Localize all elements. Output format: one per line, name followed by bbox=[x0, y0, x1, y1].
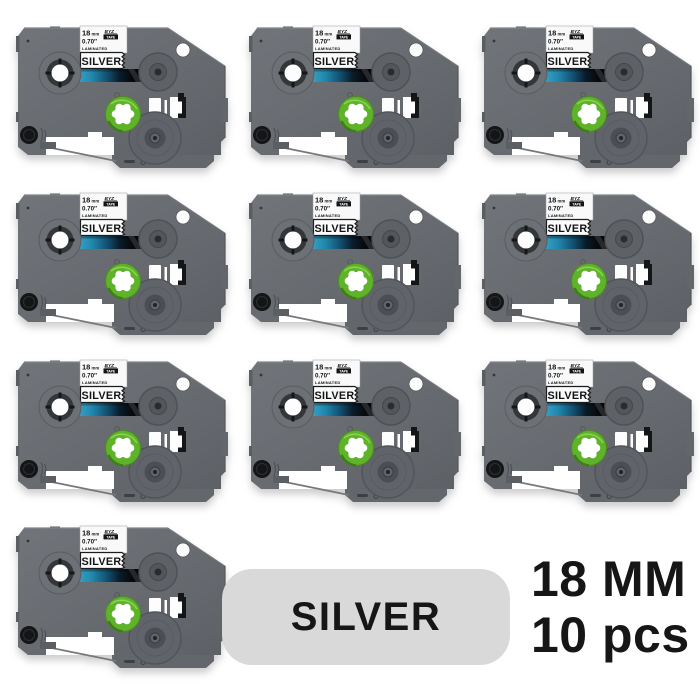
left-tab-lower bbox=[16, 612, 19, 622]
green-feed-wheel bbox=[339, 264, 374, 299]
green-feed-wheel bbox=[572, 431, 607, 466]
tape-cassette-graphic: 18 mm BYZ TAPE 0.70″ LAMINATED SILVER bbox=[482, 191, 694, 341]
cassette-info-label: 18 mm BYZ TAPE 0.70″ LAMINATED SILVER bbox=[313, 26, 360, 69]
top-right-hole bbox=[176, 377, 190, 391]
upper-right-hub bbox=[139, 553, 177, 591]
size-inches-text: 0.70″ bbox=[548, 39, 563, 46]
left-tab-upper bbox=[482, 36, 486, 52]
cassette-info-label: 18 mm BYZ TAPE 0.70″ LAMINATED SILVER bbox=[313, 193, 360, 236]
size-unit-text: mm bbox=[325, 366, 333, 371]
laminated-text: LAMINATED bbox=[548, 380, 574, 385]
tape-cassette: 18 mm BYZ TAPE 0.70″ LAMINATED SILVER bbox=[249, 191, 461, 341]
brand-logo-text: BYZ bbox=[338, 363, 349, 369]
green-feed-wheel bbox=[106, 264, 141, 299]
color-name-text: SILVER bbox=[315, 390, 355, 402]
left-tab-upper bbox=[482, 203, 486, 219]
cassette-info-label: 18 mm BYZ TAPE 0.70″ LAMINATED SILVER bbox=[546, 193, 593, 236]
left-tab-lower bbox=[16, 279, 19, 289]
left-tab-upper bbox=[249, 203, 253, 219]
right-latch-tab bbox=[454, 432, 461, 456]
right-latch-tab bbox=[687, 432, 694, 456]
left-tab-upper bbox=[16, 203, 20, 219]
left-tab-lower bbox=[482, 279, 485, 289]
top-right-hole bbox=[176, 43, 190, 57]
left-tab-lower bbox=[16, 112, 19, 122]
green-feed-wheel bbox=[339, 97, 374, 132]
brand-logo-text: BYZ bbox=[571, 196, 582, 202]
size-unit-text: mm bbox=[558, 199, 566, 204]
tape-cassette-graphic: 18 mm BYZ TAPE 0.70″ LAMINATED SILVER bbox=[16, 191, 228, 341]
cassette-info-label: 18 mm BYZ TAPE 0.70″ LAMINATED SILVER bbox=[313, 360, 360, 403]
size-mm-text: 18 bbox=[82, 363, 90, 372]
left-tab-upper bbox=[249, 370, 253, 386]
upper-right-hub bbox=[372, 53, 410, 91]
lever-pivot bbox=[506, 309, 522, 316]
upper-right-hub bbox=[605, 53, 643, 91]
cassette-info-label: 18 mm BYZ TAPE 0.70″ LAMINATED SILVER bbox=[80, 360, 127, 403]
lever-pivot bbox=[506, 476, 522, 483]
size-mm-text: 18 bbox=[315, 29, 323, 38]
lever-pivot bbox=[40, 642, 56, 649]
brand-tape-text: TAPE bbox=[106, 202, 116, 206]
tape-cassette-graphic: 18 mm BYZ TAPE 0.70″ LAMINATED SILVER bbox=[482, 24, 694, 174]
laminated-text: LAMINATED bbox=[548, 213, 574, 218]
size-mm-text: 18 bbox=[548, 29, 556, 38]
left-tab-upper bbox=[16, 36, 20, 52]
left-spool bbox=[39, 219, 81, 261]
right-latch-tab bbox=[221, 265, 228, 289]
lever-pivot bbox=[273, 309, 289, 316]
laminated-text: LAMINATED bbox=[548, 46, 574, 51]
size-inches-text: 0.70″ bbox=[548, 373, 563, 380]
laminated-text: LAMINATED bbox=[315, 380, 341, 385]
right-latch-tab bbox=[454, 98, 461, 122]
tape-cassette-graphic: 18 mm BYZ TAPE 0.70″ LAMINATED SILVER bbox=[249, 191, 461, 341]
left-tab-lower bbox=[482, 446, 485, 456]
size-unit-text: mm bbox=[558, 32, 566, 37]
green-feed-wheel bbox=[339, 431, 374, 466]
tape-cassette: 18 mm BYZ TAPE 0.70″ LAMINATED SILVER bbox=[482, 24, 694, 174]
brand-logo-text: BYZ bbox=[571, 363, 582, 369]
top-right-hole bbox=[409, 377, 423, 391]
size-mm-text: 18 bbox=[548, 363, 556, 372]
laminated-text: LAMINATED bbox=[315, 213, 341, 218]
cassette-info-label: 18 mm BYZ TAPE 0.70″ LAMINATED SILVER bbox=[80, 193, 127, 236]
left-tab-lower bbox=[249, 446, 252, 456]
tape-cassette: 18 mm BYZ TAPE 0.70″ LAMINATED SILVER bbox=[16, 191, 228, 341]
product-image: 18 mm BYZ TAPE 0.70″ LAMINATED SILVER bbox=[0, 0, 700, 700]
tape-cassette-graphic: 18 mm BYZ TAPE 0.70″ LAMINATED SILVER bbox=[16, 24, 228, 174]
left-spool bbox=[505, 386, 547, 428]
upper-right-hub bbox=[605, 220, 643, 258]
tape-cassette: 18 mm BYZ TAPE 0.70″ LAMINATED SILVER bbox=[482, 358, 694, 508]
right-latch-tab bbox=[687, 98, 694, 122]
size-inches-text: 0.70″ bbox=[82, 39, 97, 46]
quantity-info-text: 10 pcs bbox=[531, 607, 690, 663]
laminated-text: LAMINATED bbox=[82, 46, 108, 51]
top-right-hole bbox=[642, 43, 656, 57]
size-mm-text: 18 bbox=[82, 196, 90, 205]
left-spool bbox=[272, 52, 314, 94]
size-inches-text: 0.70″ bbox=[82, 206, 97, 213]
top-right-hole bbox=[642, 210, 656, 224]
brand-tape-text: TAPE bbox=[572, 35, 582, 39]
lever-pivot bbox=[40, 142, 56, 149]
cassette-info-label: 18 mm BYZ TAPE 0.70″ LAMINATED SILVER bbox=[546, 26, 593, 69]
size-mm-text: 18 bbox=[82, 529, 90, 538]
upper-right-hub bbox=[372, 387, 410, 425]
size-unit-text: mm bbox=[92, 366, 100, 371]
color-badge: SILVER bbox=[222, 569, 510, 665]
brand-tape-text: TAPE bbox=[106, 35, 116, 39]
size-inches-text: 0.70″ bbox=[315, 373, 330, 380]
tape-cassette: 18 mm BYZ TAPE 0.70″ LAMINATED SILVER bbox=[482, 191, 694, 341]
tape-cassette: 18 mm BYZ TAPE 0.70″ LAMINATED SILVER bbox=[249, 358, 461, 508]
size-inches-text: 0.70″ bbox=[82, 539, 97, 546]
size-inches-text: 0.70″ bbox=[315, 39, 330, 46]
tape-cassette-graphic: 18 mm BYZ TAPE 0.70″ LAMINATED SILVER bbox=[249, 24, 461, 174]
color-name-text: SILVER bbox=[82, 223, 122, 235]
brand-tape-text: TAPE bbox=[339, 35, 349, 39]
left-spool bbox=[272, 386, 314, 428]
left-tab-lower bbox=[249, 279, 252, 289]
color-name-text: SILVER bbox=[82, 556, 122, 568]
right-latch-tab bbox=[687, 265, 694, 289]
left-tab-upper bbox=[16, 370, 20, 386]
laminated-text: LAMINATED bbox=[82, 380, 108, 385]
left-tab-lower bbox=[16, 446, 19, 456]
upper-right-hub bbox=[139, 387, 177, 425]
size-unit-text: mm bbox=[558, 366, 566, 371]
top-right-hole bbox=[176, 210, 190, 224]
brand-tape-text: TAPE bbox=[339, 369, 349, 373]
size-mm-text: 18 bbox=[548, 196, 556, 205]
left-spool bbox=[39, 552, 81, 594]
size-inches-text: 0.70″ bbox=[315, 206, 330, 213]
left-tab-upper bbox=[16, 536, 20, 552]
laminated-text: LAMINATED bbox=[82, 213, 108, 218]
lever-pivot bbox=[40, 309, 56, 316]
top-right-hole bbox=[409, 210, 423, 224]
left-tab-upper bbox=[249, 36, 253, 52]
size-unit-text: mm bbox=[92, 199, 100, 204]
brand-logo-text: BYZ bbox=[105, 196, 116, 202]
upper-right-hub bbox=[139, 53, 177, 91]
product-info: 18 MM 10 pcs bbox=[531, 551, 690, 663]
size-unit-text: mm bbox=[92, 532, 100, 537]
size-mm-text: 18 bbox=[315, 196, 323, 205]
lever-pivot bbox=[273, 476, 289, 483]
upper-right-hub bbox=[372, 220, 410, 258]
upper-right-hub bbox=[605, 387, 643, 425]
left-spool bbox=[39, 386, 81, 428]
left-tab-lower bbox=[482, 112, 485, 122]
size-mm-text: 18 bbox=[315, 363, 323, 372]
top-right-hole bbox=[642, 377, 656, 391]
size-unit-text: mm bbox=[325, 32, 333, 37]
lever-pivot bbox=[506, 142, 522, 149]
color-name-text: SILVER bbox=[548, 223, 588, 235]
upper-right-hub bbox=[139, 220, 177, 258]
size-inches-text: 0.70″ bbox=[548, 206, 563, 213]
tape-cassette: 18 mm BYZ TAPE 0.70″ LAMINATED SILVER bbox=[16, 524, 228, 674]
size-mm-text: 18 bbox=[82, 29, 90, 38]
top-right-hole bbox=[409, 43, 423, 57]
color-name-text: SILVER bbox=[548, 56, 588, 68]
brand-tape-text: TAPE bbox=[339, 202, 349, 206]
green-feed-wheel bbox=[572, 264, 607, 299]
right-latch-tab bbox=[221, 432, 228, 456]
left-spool bbox=[39, 52, 81, 94]
lever-pivot bbox=[40, 476, 56, 483]
size-unit-text: mm bbox=[92, 32, 100, 37]
brand-logo-text: BYZ bbox=[338, 196, 349, 202]
brand-tape-text: TAPE bbox=[572, 369, 582, 373]
left-tab-upper bbox=[482, 370, 486, 386]
brand-logo-text: BYZ bbox=[105, 363, 116, 369]
left-spool bbox=[505, 52, 547, 94]
size-inches-text: 0.70″ bbox=[82, 373, 97, 380]
tape-cassette-graphic: 18 mm BYZ TAPE 0.70″ LAMINATED SILVER bbox=[482, 358, 694, 508]
laminated-text: LAMINATED bbox=[82, 546, 108, 551]
brand-tape-text: TAPE bbox=[106, 369, 116, 373]
left-spool bbox=[272, 219, 314, 261]
top-right-hole bbox=[176, 543, 190, 557]
laminated-text: LAMINATED bbox=[315, 46, 341, 51]
right-latch-tab bbox=[221, 98, 228, 122]
size-unit-text: mm bbox=[325, 199, 333, 204]
cassette-info-label: 18 mm BYZ TAPE 0.70″ LAMINATED SILVER bbox=[546, 360, 593, 403]
brand-tape-text: TAPE bbox=[572, 202, 582, 206]
green-feed-wheel bbox=[106, 97, 141, 132]
cassette-info-label: 18 mm BYZ TAPE 0.70″ LAMINATED SILVER bbox=[80, 526, 127, 569]
size-info-text: 18 MM bbox=[531, 551, 690, 607]
color-name-text: SILVER bbox=[548, 390, 588, 402]
tape-cassette: 18 mm BYZ TAPE 0.70″ LAMINATED SILVER bbox=[249, 24, 461, 174]
green-feed-wheel bbox=[106, 597, 141, 632]
brand-tape-text: TAPE bbox=[106, 535, 116, 539]
tape-cassette-graphic: 18 mm BYZ TAPE 0.70″ LAMINATED SILVER bbox=[16, 524, 228, 674]
tape-cassette-graphic: 18 mm BYZ TAPE 0.70″ LAMINATED SILVER bbox=[16, 358, 228, 508]
cassette-info-label: 18 mm BYZ TAPE 0.70″ LAMINATED SILVER bbox=[80, 26, 127, 69]
tape-cassette: 18 mm BYZ TAPE 0.70″ LAMINATED SILVER bbox=[16, 24, 228, 174]
tape-cassette: 18 mm BYZ TAPE 0.70″ LAMINATED SILVER bbox=[16, 358, 228, 508]
color-name-text: SILVER bbox=[82, 56, 122, 68]
right-latch-tab bbox=[454, 265, 461, 289]
green-feed-wheel bbox=[572, 97, 607, 132]
color-badge-label: SILVER bbox=[291, 595, 442, 640]
left-tab-lower bbox=[249, 112, 252, 122]
left-spool bbox=[505, 219, 547, 261]
color-name-text: SILVER bbox=[82, 390, 122, 402]
green-feed-wheel bbox=[106, 431, 141, 466]
lever-pivot bbox=[273, 142, 289, 149]
tape-cassette-graphic: 18 mm BYZ TAPE 0.70″ LAMINATED SILVER bbox=[249, 358, 461, 508]
color-name-text: SILVER bbox=[315, 56, 355, 68]
color-name-text: SILVER bbox=[315, 223, 355, 235]
